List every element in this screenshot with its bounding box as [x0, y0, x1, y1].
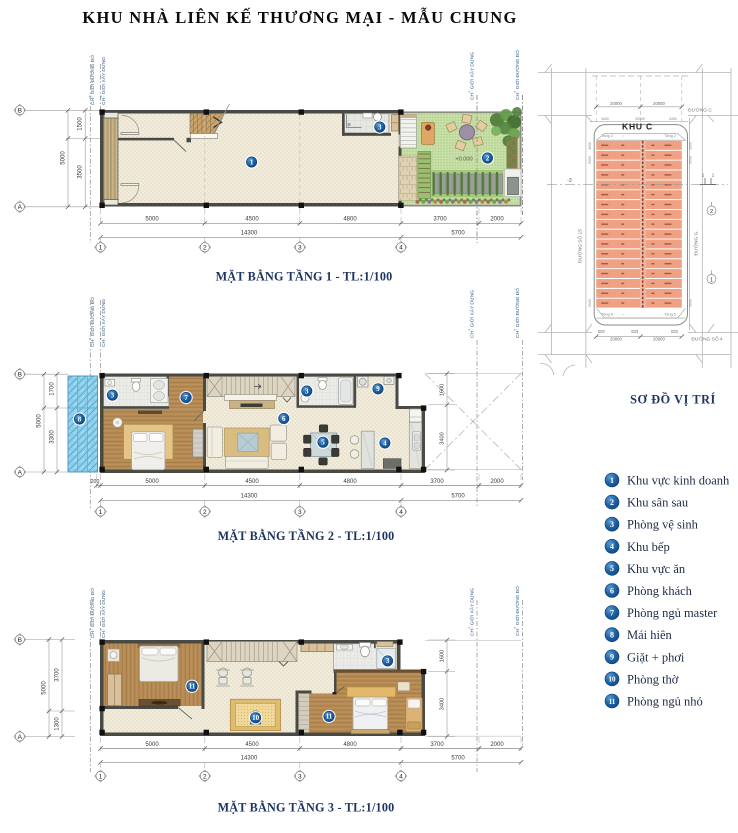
- svg-text:20000: 20000: [610, 337, 622, 342]
- svg-text:3700: 3700: [55, 668, 61, 682]
- svg-text:Phòng thờ: Phòng thờ: [627, 672, 679, 686]
- svg-text:5000: 5000: [42, 681, 48, 695]
- svg-text:6: 6: [610, 586, 614, 595]
- svg-text:4500: 4500: [245, 479, 259, 485]
- svg-text:CHᰰ GIỚI ĐƯỜNG ĐỎ: CHᰰ GIỚI ĐƯỜNG ĐỎ: [89, 588, 96, 638]
- svg-text:3500: 3500: [78, 165, 84, 179]
- svg-text:4: 4: [399, 773, 403, 780]
- svg-text:Mái hiên: Mái hiên: [627, 628, 673, 642]
- svg-text:1: 1: [99, 773, 103, 780]
- svg-text:4: 4: [610, 542, 614, 551]
- svg-text:200: 200: [91, 479, 100, 485]
- svg-text:4800: 4800: [343, 479, 357, 485]
- svg-text:5700: 5700: [451, 756, 465, 762]
- svg-text:8: 8: [78, 415, 82, 423]
- svg-text:CHᰰ GIỚI ĐƯỜNG ĐỎ: CHᰰ GIỚI ĐƯỜNG ĐỎ: [514, 288, 521, 338]
- svg-text:4: 4: [399, 509, 403, 516]
- svg-text:7: 7: [610, 608, 614, 617]
- svg-text:CHᰰ GIỚI ĐƯỜNG ĐỎ: CHᰰ GIỚI ĐƯỜNG ĐỎ: [89, 55, 96, 105]
- svg-text:1: 1: [99, 509, 103, 516]
- svg-text:3000: 3000: [689, 142, 693, 150]
- svg-text:Khu vực kinh doanh: Khu vực kinh doanh: [627, 474, 730, 488]
- svg-text:3: 3: [111, 391, 115, 399]
- svg-text:4800: 4800: [343, 742, 357, 748]
- svg-text:5: 5: [321, 439, 325, 447]
- svg-text:4500: 4500: [245, 742, 259, 748]
- svg-text:B: B: [18, 108, 22, 115]
- svg-text:MẶT BẰNG TẦNG 1 - TL:1/100: MẶT BẰNG TẦNG 1 - TL:1/100: [216, 269, 393, 284]
- svg-text:CHᰰ GIỚI XÂY DỰNG: CHᰰ GIỚI XÂY DỰNG: [100, 57, 107, 105]
- svg-text:Tầng 2: Tầng 2: [664, 134, 676, 138]
- svg-text:14300: 14300: [241, 756, 258, 762]
- svg-text:CHᰰ GIỚI ĐƯỜNG ĐỎ: CHᰰ GIỚI ĐƯỜNG ĐỎ: [89, 297, 96, 347]
- svg-text:3: 3: [298, 245, 302, 252]
- svg-text:30000: 30000: [635, 117, 645, 121]
- svg-text:14300: 14300: [241, 494, 258, 500]
- svg-text:1300: 1300: [55, 717, 61, 731]
- svg-text:3: 3: [305, 387, 309, 395]
- svg-text:SƠ ĐỒ VỊ TRÍ: SƠ ĐỒ VỊ TRÍ: [630, 392, 716, 407]
- svg-text:CHᰰ GIỚI XÂY DỰNG: CHᰰ GIỚI XÂY DỰNG: [469, 52, 476, 100]
- svg-text:2: 2: [203, 773, 207, 780]
- svg-text:5000: 5000: [689, 299, 693, 307]
- svg-text:4500: 4500: [245, 217, 259, 223]
- svg-text:Tầng 5: Tầng 5: [664, 312, 676, 316]
- svg-text:KHU C: KHU C: [622, 122, 653, 132]
- svg-text:10: 10: [609, 676, 617, 684]
- svg-text:CHᰰ GIỚI XÂY DỰNG: CHᰰ GIỚI XÂY DỰNG: [469, 588, 476, 636]
- svg-text:3300: 3300: [50, 430, 56, 444]
- svg-text:Tầng 6: Tầng 6: [601, 312, 613, 316]
- svg-text:9: 9: [610, 653, 614, 662]
- svg-text:2: 2: [486, 154, 490, 162]
- svg-text:5000: 5000: [145, 479, 159, 485]
- svg-text:Khu bếp: Khu bếp: [627, 540, 670, 554]
- svg-text:10: 10: [252, 714, 260, 722]
- svg-text:1: 1: [710, 277, 713, 283]
- svg-text:3: 3: [298, 773, 302, 780]
- svg-text:5000: 5000: [37, 414, 43, 428]
- svg-text:-3: -3: [567, 178, 572, 184]
- svg-text:5700: 5700: [451, 231, 465, 237]
- svg-text:3: 3: [386, 657, 390, 665]
- svg-text:20000: 20000: [653, 337, 665, 342]
- svg-text:CHᰰ GIỚI ĐƯỜNG ĐỎ: CHᰰ GIỚI ĐƯỜNG ĐỎ: [514, 586, 521, 636]
- svg-text:2: 2: [610, 498, 614, 507]
- svg-text:ĐƯỜNG C: ĐƯỜNG C: [688, 107, 712, 114]
- svg-text:2000: 2000: [490, 742, 504, 748]
- svg-text:CHᰰ GIỚI XÂY DỰNG: CHᰰ GIỚI XÂY DỰNG: [469, 290, 476, 338]
- svg-text:5000: 5000: [145, 742, 159, 748]
- svg-text:Phòng vệ sinh: Phòng vệ sinh: [627, 518, 699, 532]
- svg-text:CHᰰ GIỚI ĐƯỜNG ĐỎ: CHᰰ GIỚI ĐƯỜNG ĐỎ: [514, 50, 521, 100]
- svg-text:2: 2: [710, 209, 713, 215]
- svg-text:Khu vực ăn: Khu vực ăn: [627, 562, 686, 576]
- svg-text:ĐƯỜNG SỐ 4: ĐƯỜNG SỐ 4: [691, 336, 722, 343]
- svg-text:2: 2: [203, 245, 207, 252]
- svg-text:7: 7: [184, 394, 188, 402]
- svg-text:4: 4: [383, 439, 387, 447]
- svg-text:Phòng khách: Phòng khách: [627, 584, 693, 598]
- svg-text:8: 8: [610, 631, 614, 640]
- svg-text:Giặt + phơi: Giặt + phơi: [627, 650, 685, 664]
- svg-text:11: 11: [326, 713, 333, 721]
- svg-text:A: A: [18, 204, 23, 211]
- svg-text:20000: 20000: [653, 101, 665, 106]
- svg-text:Tầng 2: Tầng 2: [601, 134, 613, 138]
- svg-text:3000: 3000: [588, 142, 592, 150]
- svg-text:11: 11: [189, 683, 196, 691]
- svg-text:3: 3: [610, 520, 614, 529]
- svg-text:A: A: [18, 469, 23, 476]
- svg-text:1: 1: [250, 158, 254, 166]
- svg-text:Phòng ngủ nhỏ: Phòng ngủ nhỏ: [627, 695, 703, 709]
- svg-text:14300: 14300: [241, 231, 258, 237]
- svg-text:3400: 3400: [440, 432, 446, 444]
- svg-text:1: 1: [99, 245, 103, 252]
- svg-text:11: 11: [609, 698, 616, 706]
- svg-text:A: A: [18, 734, 23, 741]
- svg-text:5000: 5000: [61, 151, 67, 165]
- svg-text:6: 6: [282, 415, 286, 423]
- svg-text:B: B: [18, 372, 22, 379]
- svg-text:2: 2: [203, 509, 207, 516]
- svg-text:1700: 1700: [50, 382, 56, 396]
- svg-text:5700: 5700: [451, 494, 465, 500]
- svg-text:1600: 1600: [440, 650, 446, 662]
- svg-text:5: 5: [610, 564, 614, 573]
- svg-text:ĐƯỜNG SỐ 15: ĐƯỜNG SỐ 15: [577, 229, 584, 263]
- svg-text:1: 1: [610, 476, 614, 485]
- svg-text:Phòng ngủ master: Phòng ngủ master: [627, 606, 718, 620]
- svg-text:3: 3: [298, 509, 302, 516]
- svg-text:5000: 5000: [588, 299, 592, 307]
- svg-text:MẶT BẰNG TẦNG 3 - TL:1/100: MẶT BẰNG TẦNG 3 - TL:1/100: [218, 800, 395, 815]
- svg-text:9: 9: [376, 385, 380, 393]
- svg-text:1500: 1500: [78, 117, 84, 131]
- svg-text:3400: 3400: [601, 117, 609, 121]
- svg-text:20000: 20000: [610, 101, 622, 106]
- svg-text:2000: 2000: [490, 479, 504, 485]
- svg-text:Khu sân sau: Khu sân sau: [627, 496, 689, 510]
- svg-text:3700: 3700: [430, 479, 444, 485]
- svg-text:KHU NHÀ LIÊN KẾ THƯƠNG MẠI - M: KHU NHÀ LIÊN KẾ THƯƠNG MẠI - MẪU CHUNG: [82, 8, 517, 27]
- svg-text:3400: 3400: [669, 117, 677, 121]
- svg-text:CHᰰ GIỚI XÂY DỰNG: CHᰰ GIỚI XÂY DỰNG: [100, 590, 107, 638]
- svg-text:B: B: [18, 637, 22, 644]
- svg-text:3400: 3400: [440, 698, 446, 710]
- svg-text:3: 3: [378, 123, 382, 131]
- svg-text:5000: 5000: [689, 156, 693, 164]
- svg-text:4: 4: [399, 245, 403, 252]
- svg-text:CHᰰ GIỚI XÂY DỰNG: CHᰰ GIỚI XÂY DỰNG: [100, 299, 107, 347]
- svg-text:4800: 4800: [343, 217, 357, 223]
- svg-text:5000: 5000: [588, 156, 592, 164]
- svg-text:1600: 1600: [440, 384, 446, 396]
- svg-text:3700: 3700: [433, 217, 447, 223]
- svg-text:+0.000: +0.000: [455, 156, 472, 162]
- svg-text:3700: 3700: [430, 742, 444, 748]
- svg-text:ĐƯỜNG G.: ĐƯỜNG G.: [693, 230, 700, 255]
- svg-text:2000: 2000: [490, 217, 504, 223]
- svg-text:MẶT BẰNG TẦNG 2 - TL:1/100: MẶT BẰNG TẦNG 2 - TL:1/100: [218, 528, 395, 543]
- svg-text:5000: 5000: [145, 217, 159, 223]
